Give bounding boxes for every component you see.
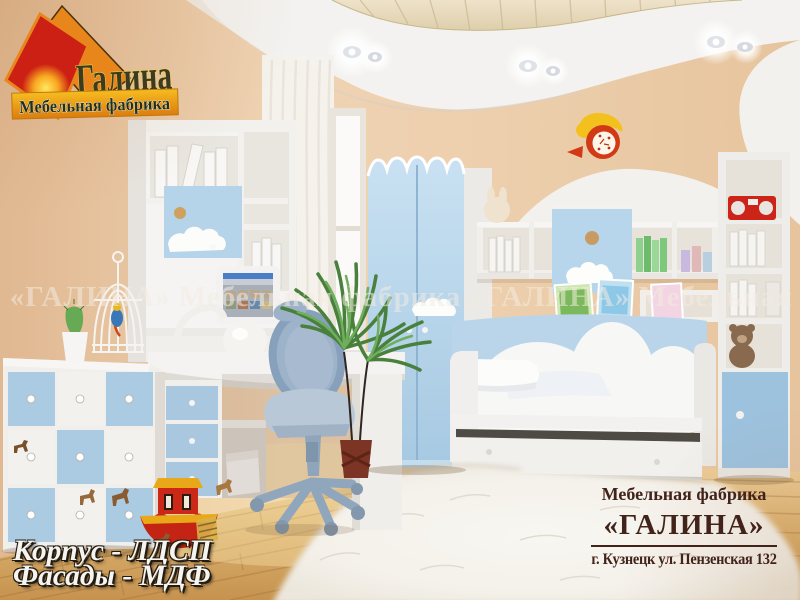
svg-text:Мебельная фабрика: Мебельная фабрика xyxy=(19,93,170,117)
